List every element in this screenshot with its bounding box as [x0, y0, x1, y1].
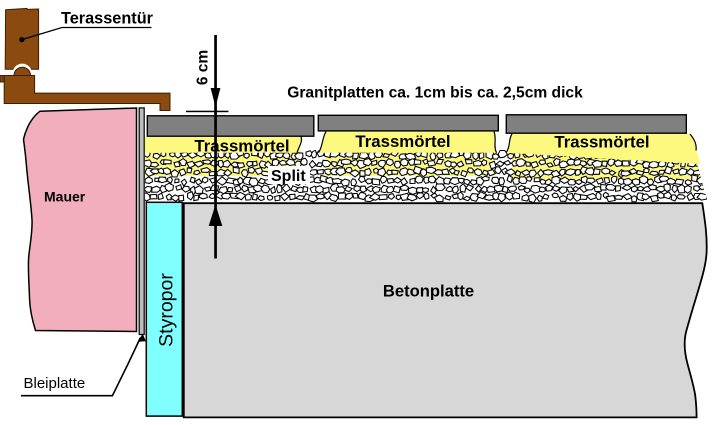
svg-text:6 cm: 6 cm [194, 50, 211, 85]
svg-text:Styropor: Styropor [156, 273, 178, 347]
svg-text:Bleiplatte: Bleiplatte [24, 375, 86, 392]
svg-text:Trassmörtel: Trassmörtel [194, 137, 289, 156]
svg-text:Granitplatten ca. 1cm bis ca.: Granitplatten ca. 1cm bis ca. 2,5cm dick [287, 85, 583, 102]
svg-text:Trassmörtel: Trassmörtel [355, 132, 450, 151]
svg-text:Betonplatte: Betonplatte [383, 282, 474, 301]
svg-text:Mauer: Mauer [44, 189, 86, 205]
svg-text:Split: Split [271, 168, 306, 185]
svg-text:Terassentür: Terassentür [61, 10, 154, 28]
svg-text:Trassmörtel: Trassmörtel [554, 133, 649, 152]
